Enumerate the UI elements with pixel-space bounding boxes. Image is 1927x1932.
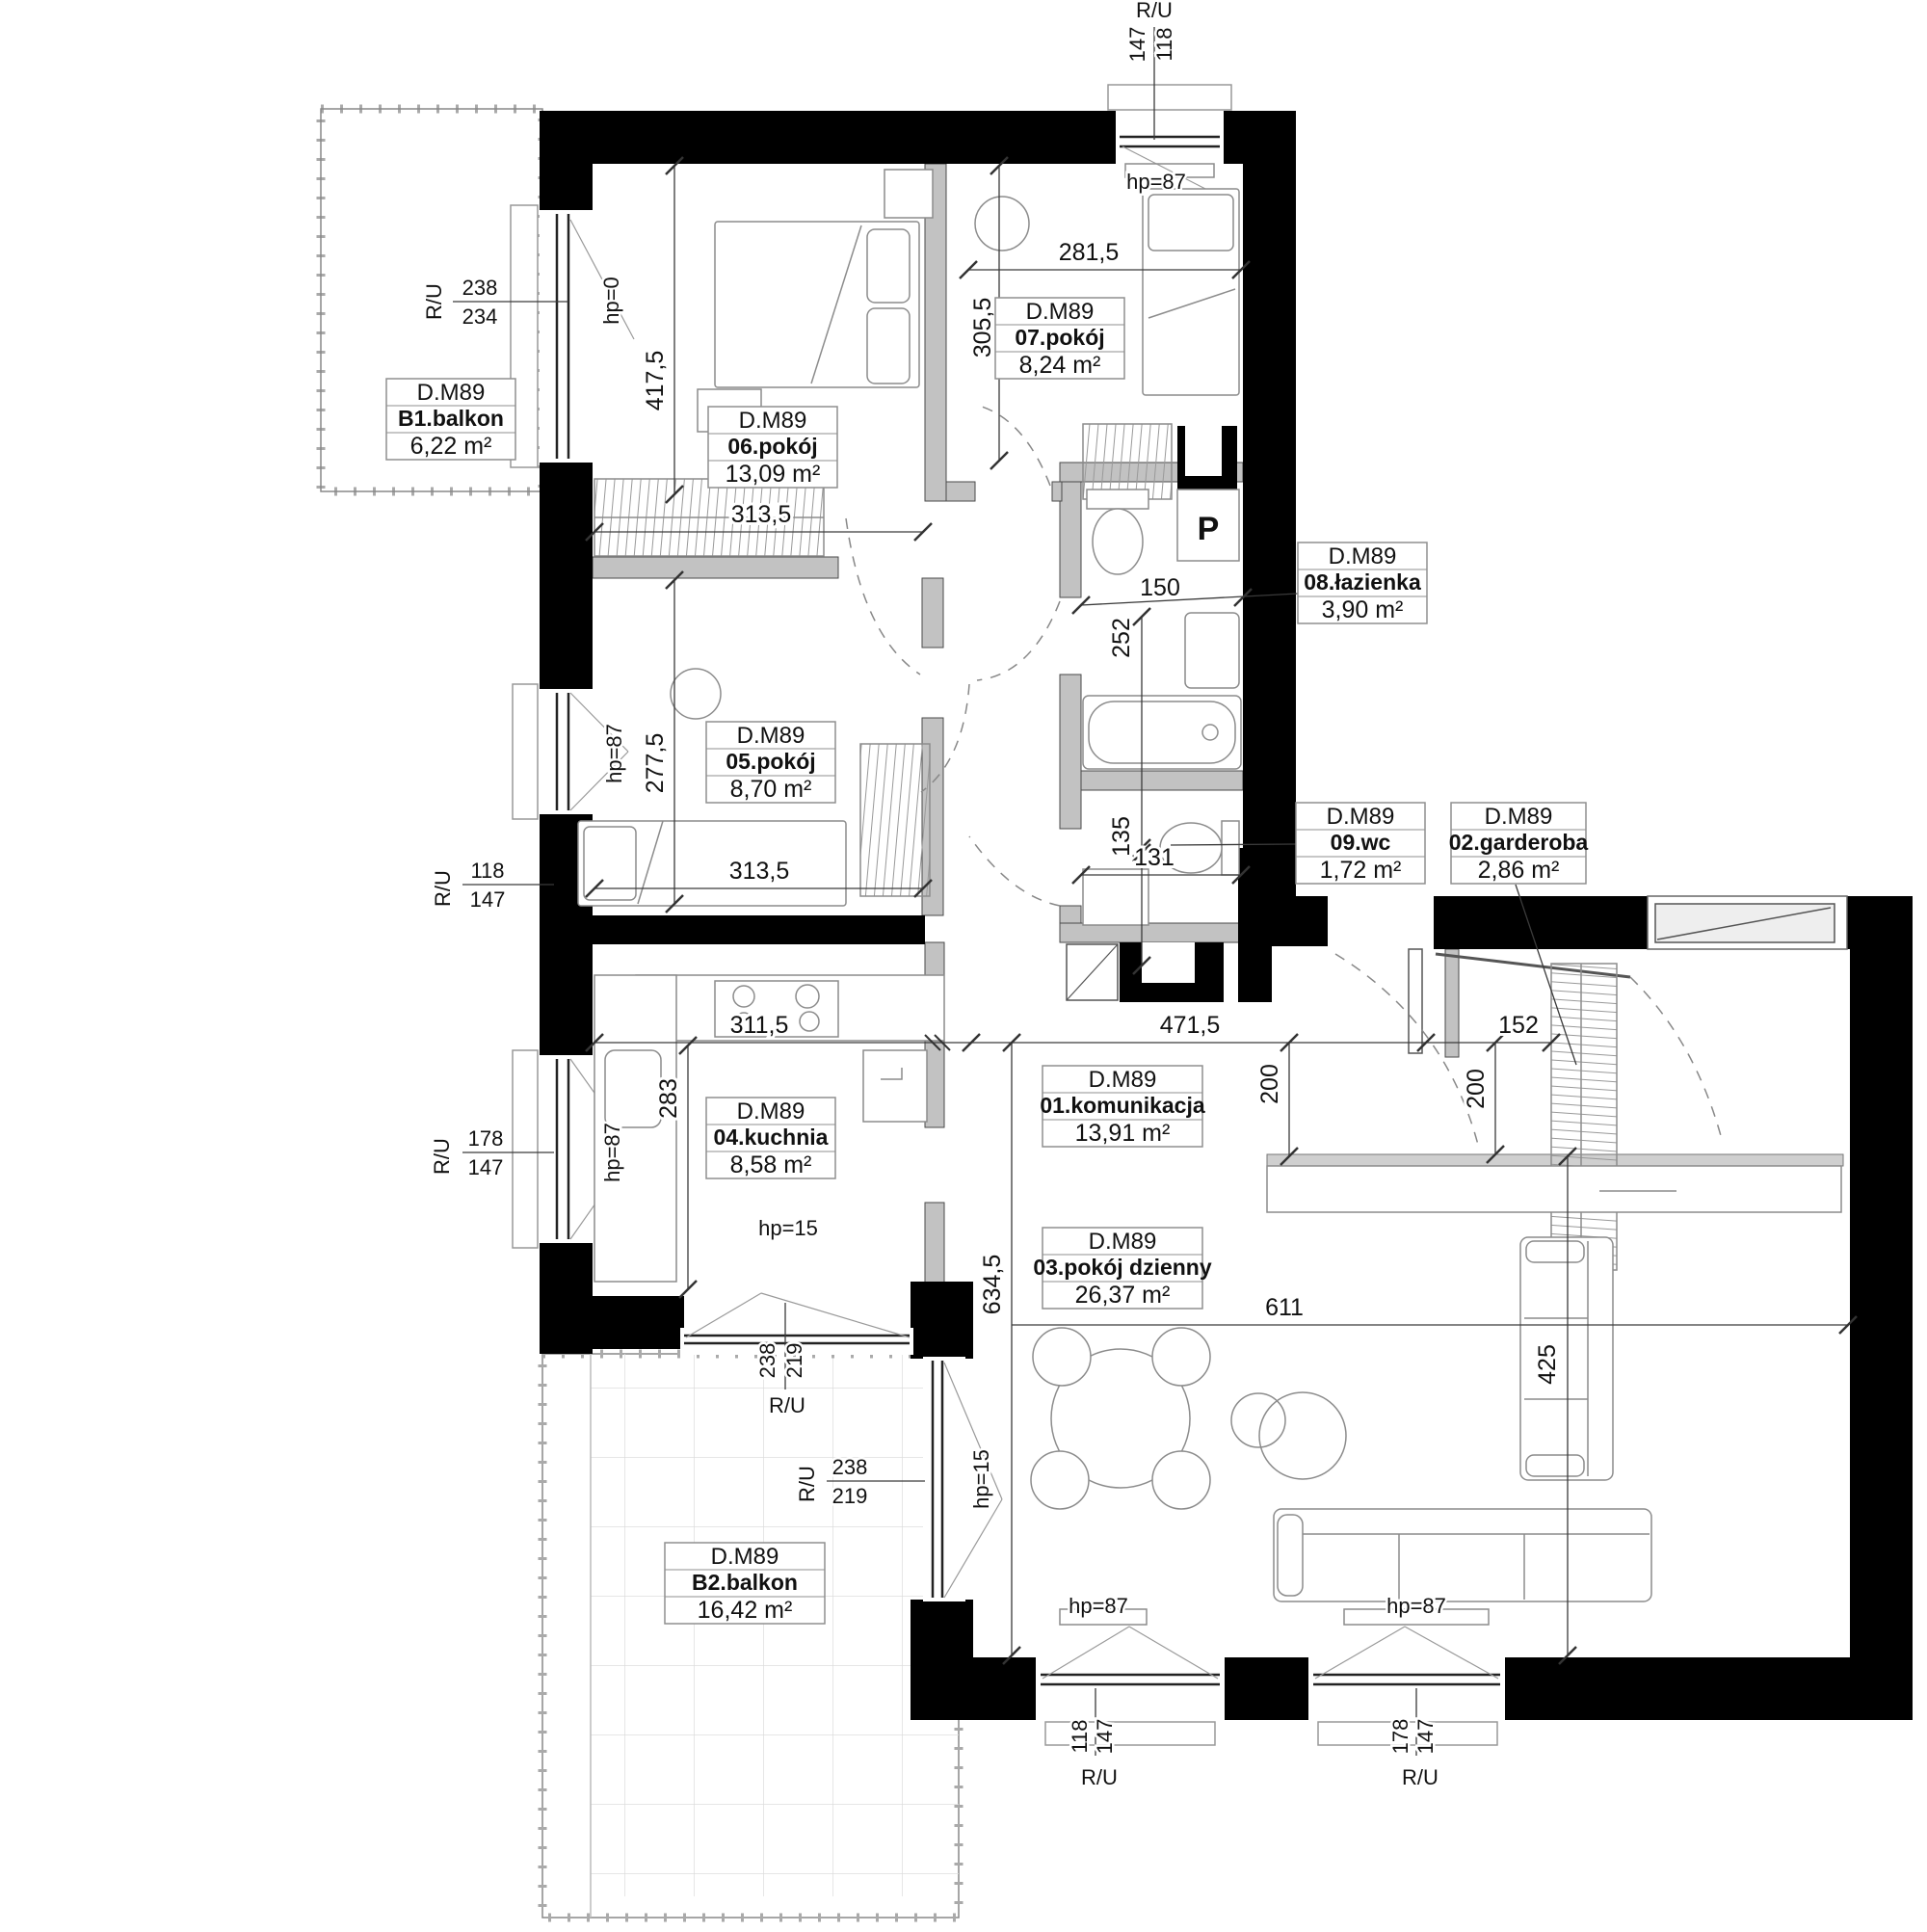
ru-top-label: R/U: [1136, 0, 1173, 22]
ru-b1-den: 234: [462, 304, 498, 329]
ru-botl-num: 118: [1068, 1719, 1092, 1753]
dim-152: 152: [1498, 1012, 1539, 1039]
room-label-balkon1: D.M89 B1.balkon 6,22 m²: [386, 379, 515, 460]
room-pokoj07-unit: D.M89: [1026, 299, 1095, 325]
ru-b2door-num: 238: [832, 1455, 868, 1479]
floor-plan-drawing: P: [0, 0, 1927, 1927]
ru-b1-label: R/U: [422, 283, 446, 320]
dim-305-5: 305,5: [969, 298, 996, 358]
room-lazienka-area: 3,90 m²: [1322, 596, 1404, 623]
ru-botr-num: 178: [1388, 1719, 1412, 1755]
room-label-pokoj07: D.M89 07.pokój 8,24 m²: [995, 298, 1124, 379]
ru-botl-den: 147: [1093, 1719, 1117, 1755]
room-komunikacja-area: 13,91 m²: [1075, 1120, 1171, 1147]
dim-135: 135: [1108, 816, 1135, 857]
room-label-pokoj06: D.M89 06.pokój 13,09 m²: [708, 407, 837, 488]
room-kuchnia-area: 8,58 m²: [730, 1151, 812, 1178]
room-kuchnia-unit: D.M89: [737, 1098, 805, 1125]
ru-05-num: 118: [470, 859, 504, 883]
room-wc-unit: D.M89: [1327, 804, 1395, 830]
dim-471-5: 471,5: [1160, 1012, 1221, 1039]
room-balkon2-name: B2.balkon: [692, 1570, 798, 1595]
ru-b2door-den: 219: [832, 1484, 868, 1508]
room-label-kuchnia: D.M89 04.kuchnia 8,58 m²: [706, 1098, 835, 1178]
dim-200-b: 200: [1463, 1069, 1490, 1109]
room-balkon2-unit: D.M89: [711, 1544, 779, 1570]
ru-top-num: 147: [1125, 27, 1149, 63]
room-garderoba-area: 2,86 m²: [1478, 857, 1560, 884]
ru-b2k-den: 219: [782, 1343, 806, 1379]
ru-b2door-label: R/U: [795, 1466, 819, 1502]
ru-botr-den: 147: [1413, 1719, 1438, 1755]
room-wc-area: 1,72 m²: [1320, 857, 1402, 884]
room-label-pokoj05: D.M89 05.pokój 8,70 m²: [706, 722, 835, 803]
ru-top-den: 118: [1152, 27, 1176, 61]
room-pokoj05-unit: D.M89: [737, 723, 805, 749]
dim-150: 150: [1140, 574, 1180, 601]
ru-kitchen-den: 147: [468, 1155, 504, 1179]
room-label-garderoba: D.M89 02.garderoba 2,86 m²: [1449, 803, 1589, 884]
room-pokoj-dzienny-unit: D.M89: [1089, 1229, 1157, 1255]
room-balkon1-area: 6,22 m²: [410, 433, 492, 460]
furniture-wc: [1083, 821, 1239, 925]
dim-611: 611: [1265, 1294, 1304, 1321]
room-pokoj-dzienny-name: 03.pokój dzienny: [1033, 1255, 1212, 1280]
hp-kitchen-low: hp=15: [758, 1216, 818, 1240]
ru-05-den: 147: [470, 887, 506, 912]
dim-425: 425: [1534, 1344, 1561, 1385]
hp-b1-door: hp=0: [599, 277, 623, 325]
dim-283: 283: [655, 1078, 682, 1119]
room-komunikacja-unit: D.M89: [1089, 1067, 1157, 1093]
ru-kitchen-label: R/U: [430, 1138, 454, 1175]
room-wc-name: 09.wc: [1331, 830, 1391, 855]
room-lazienka-unit: D.M89: [1329, 543, 1397, 569]
ru-b1-num: 238: [462, 276, 498, 300]
ru-botr-label: R/U: [1402, 1765, 1439, 1789]
ru-b2k-label: R/U: [769, 1393, 805, 1417]
hp-botr: hp=87: [1386, 1594, 1446, 1618]
dim-417-5: 417,5: [642, 351, 669, 411]
room-pokoj07-area: 8,24 m²: [1019, 352, 1101, 379]
room-pokoj06-name: 06.pokój: [727, 434, 817, 459]
dim-313-5-a: 313,5: [731, 501, 792, 528]
room-pokoj06-area: 13,09 m²: [726, 461, 821, 488]
room-label-balkon2: D.M89 B2.balkon 16,42 m²: [665, 1543, 825, 1624]
ru-botl-label: R/U: [1081, 1765, 1118, 1789]
room-garderoba-unit: D.M89: [1485, 804, 1553, 830]
room-pokoj-dzienny-area: 26,37 m²: [1075, 1282, 1171, 1309]
room-balkon1-unit: D.M89: [417, 380, 486, 406]
room-kuchnia-name: 04.kuchnia: [714, 1125, 829, 1150]
dim-311-5: 311,5: [730, 1012, 789, 1039]
room-balkon1-name: B1.balkon: [398, 406, 504, 431]
furniture-bathroom: P: [1083, 490, 1241, 769]
dim-281-5: 281,5: [1059, 239, 1120, 266]
room-label-komunikacja: D.M89 01.komunikacja 13,91 m²: [1040, 1066, 1205, 1147]
dim-634-5: 634,5: [979, 1255, 1006, 1315]
room-lazienka-name: 08.łazienka: [1304, 569, 1421, 595]
dim-252: 252: [1108, 618, 1135, 658]
room-pokoj05-name: 05.pokój: [726, 749, 815, 774]
hp-kitchen: hp=87: [600, 1123, 624, 1182]
room-pokoj06-unit: D.M89: [739, 408, 807, 434]
balcony-b2-outline: [542, 1354, 959, 1918]
room-pokoj05-area: 8,70 m²: [730, 776, 812, 803]
ru-kitchen-num: 178: [468, 1126, 504, 1151]
furniture-garderoba: [1551, 964, 1617, 1270]
ru-05-label: R/U: [431, 870, 455, 907]
dim-277-5: 277,5: [642, 733, 669, 794]
hp-05: hp=87: [602, 724, 626, 783]
hp-botl: hp=87: [1069, 1594, 1128, 1618]
floor-plan-page: P: [0, 0, 1927, 1927]
room-label-lazienka: D.M89 08.łazienka 3,90 m²: [1298, 543, 1427, 623]
room-pokoj07-name: 07.pokój: [1015, 325, 1104, 350]
hp-top: hp=87: [1126, 170, 1186, 194]
room-garderoba-name: 02.garderoba: [1449, 830, 1589, 855]
room-label-wc: D.M89 09.wc 1,72 m²: [1296, 803, 1425, 884]
room-komunikacja-name: 01.komunikacja: [1040, 1093, 1205, 1118]
washer-symbol: P: [1198, 511, 1220, 547]
room-balkon2-area: 16,42 m²: [698, 1597, 793, 1624]
room-label-pokoj-dzienny: D.M89 03.pokój dzienny 26,37 m²: [1033, 1228, 1212, 1309]
dim-131: 131: [1134, 844, 1175, 871]
hp-b2-door: hp=15: [969, 1449, 993, 1509]
dim-200-a: 200: [1256, 1064, 1283, 1104]
ru-b2k-num: 238: [755, 1343, 779, 1379]
dim-313-5-b: 313,5: [729, 858, 790, 885]
